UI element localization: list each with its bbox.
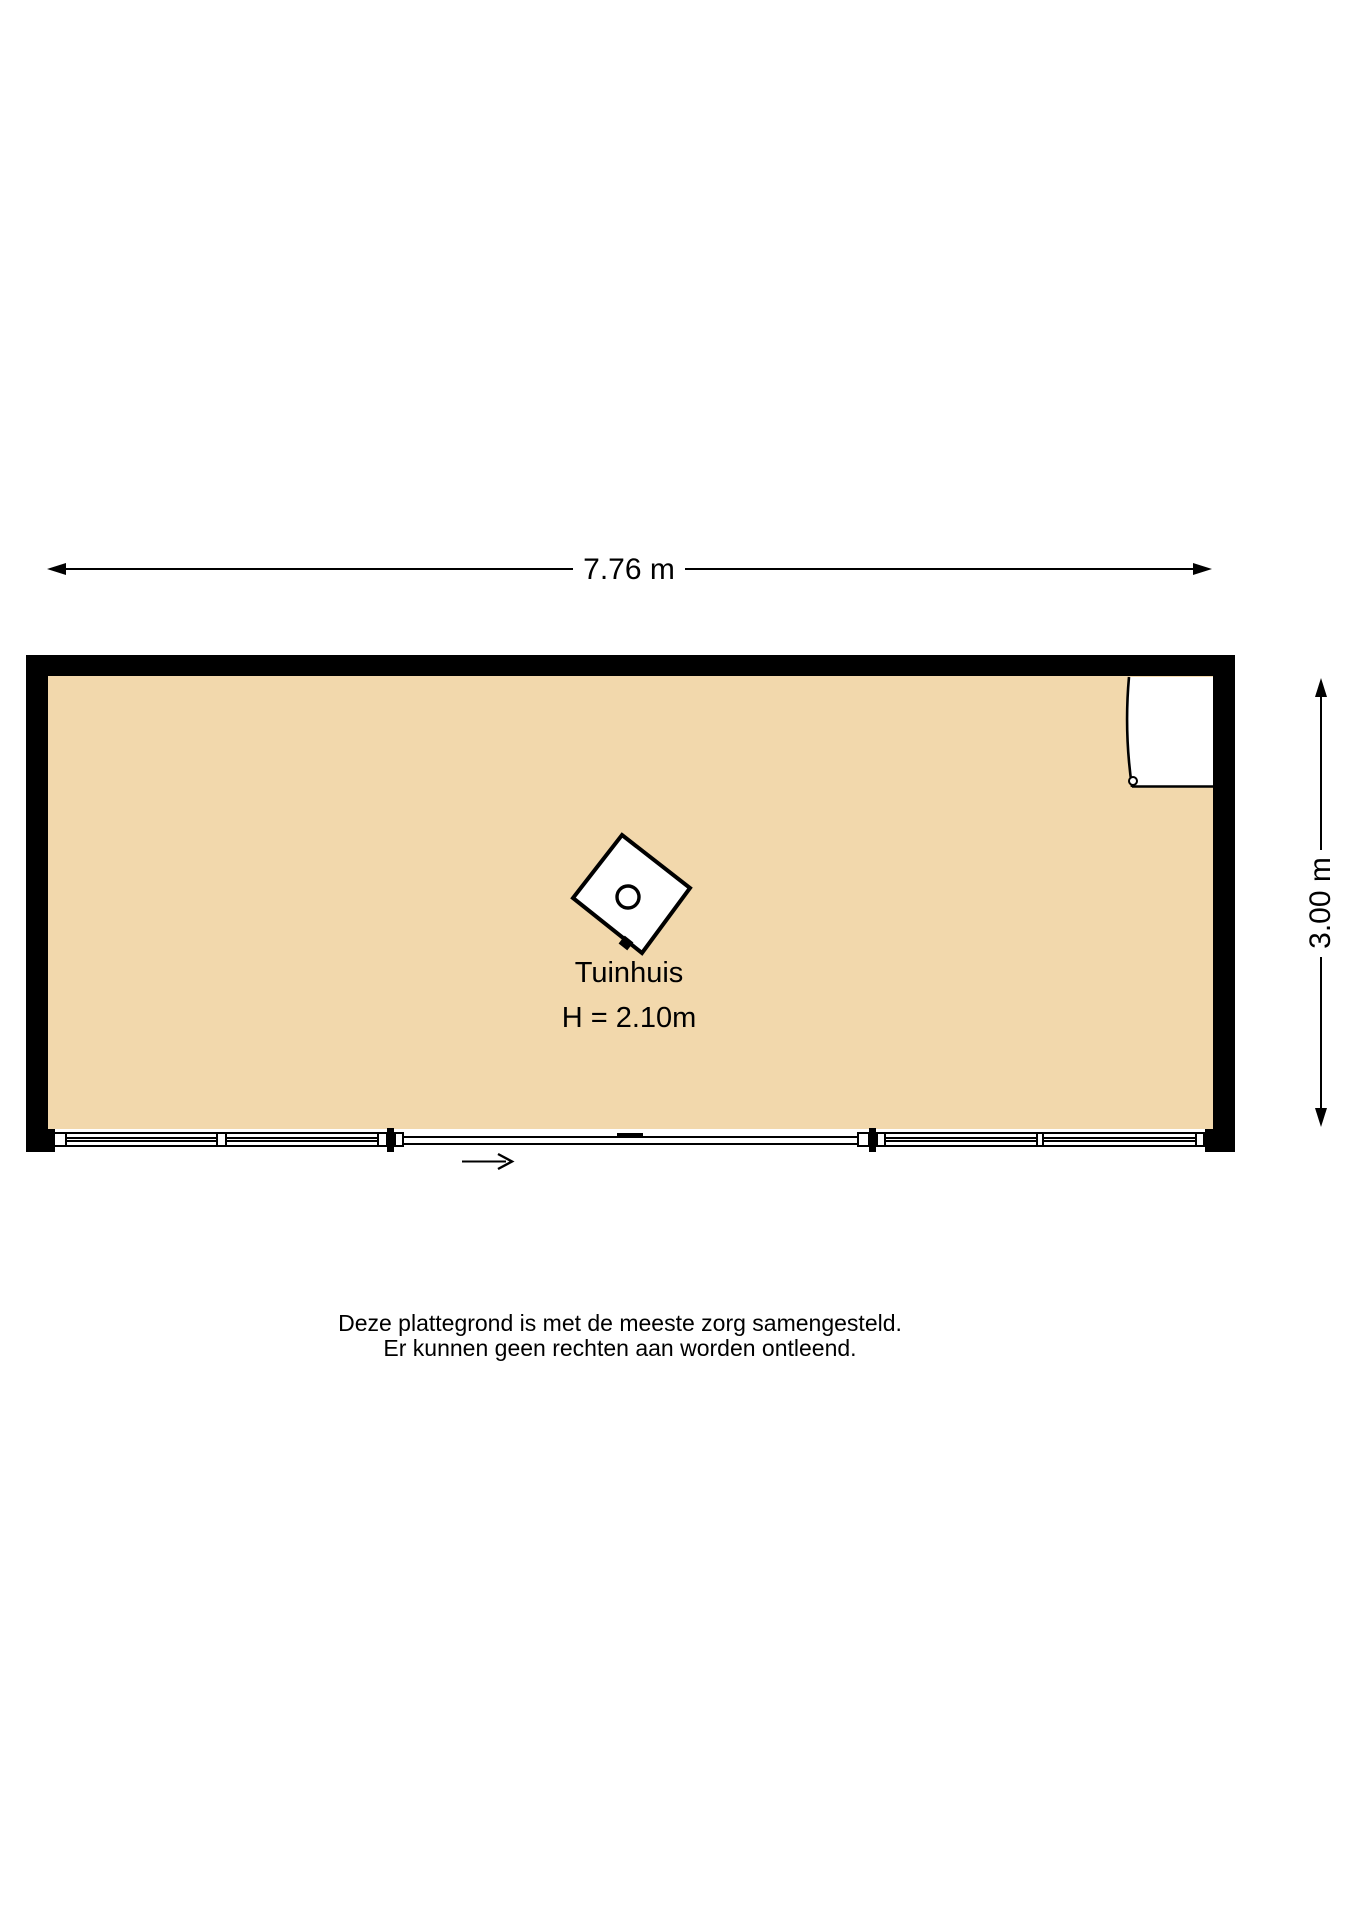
floorplan-page: 7.76 m 3.00 m	[0, 0, 1358, 1920]
disclaimer-line2: Er kunnen geen rechten aan worden ontlee…	[338, 1336, 902, 1361]
dimension-line	[1320, 957, 1322, 1110]
door-swing-icon	[1121, 675, 1215, 790]
window-glazing-icon	[227, 1132, 377, 1147]
wall-stub	[387, 1128, 394, 1152]
room-name-label: Tuinhuis	[575, 957, 684, 989]
window-frame-post	[1195, 1132, 1205, 1147]
dimension-arrow-right-icon	[1193, 563, 1212, 575]
ceiling-height-label: H = 2.10m	[562, 1002, 697, 1034]
window-mullion	[216, 1132, 227, 1147]
slide-direction-arrow-icon	[458, 1150, 518, 1174]
depth-dimension-label: 3.00 m	[1306, 853, 1336, 953]
door-hinge	[1129, 777, 1137, 785]
window-frame-post	[394, 1132, 404, 1147]
window-glazing-icon	[67, 1132, 217, 1147]
width-dimension-label: 7.76 m	[579, 555, 679, 585]
stove-icon	[558, 820, 708, 965]
sliding-door-icon	[404, 1136, 857, 1145]
dimension-arrow-down-icon	[1315, 1108, 1327, 1127]
window-mullion	[1036, 1132, 1044, 1147]
window-frame-post	[876, 1132, 886, 1147]
disclaimer-line1: Deze plattegrond is met de meeste zorg s…	[338, 1311, 902, 1336]
window-glazing-icon	[1044, 1132, 1195, 1147]
dimension-line	[685, 568, 1195, 570]
sliding-door-overlap	[617, 1133, 643, 1137]
stove-ring	[617, 886, 639, 908]
dimension-line	[1320, 695, 1322, 850]
window-glazing-icon	[886, 1132, 1037, 1147]
wall-stub	[869, 1128, 876, 1152]
window-frame-post	[53, 1132, 67, 1147]
dimension-line	[64, 568, 573, 570]
door-leaf-area	[1127, 677, 1213, 787]
disclaimer: Deze plattegrond is met de meeste zorg s…	[338, 1311, 902, 1361]
